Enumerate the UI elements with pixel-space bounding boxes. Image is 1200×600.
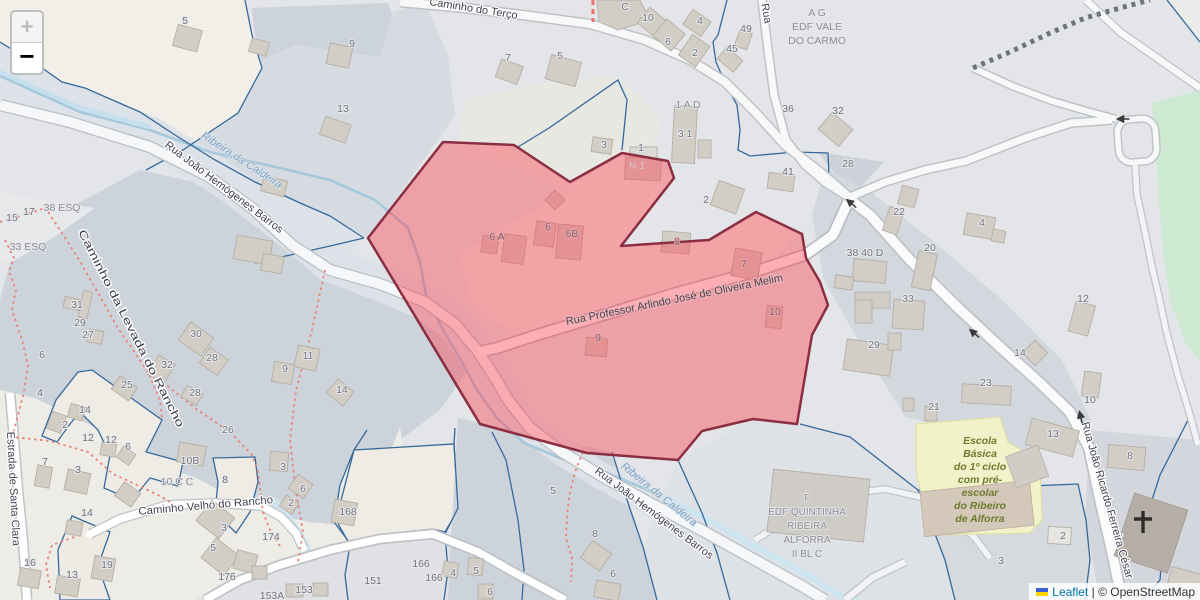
svg-text:EDF VALE: EDF VALE [792, 21, 842, 33]
svg-text:3: 3 [221, 522, 227, 534]
svg-text:28: 28 [189, 387, 201, 399]
svg-text:do Ribeiro: do Ribeiro [954, 500, 1007, 512]
svg-text:5: 5 [473, 565, 479, 577]
svg-text:10B: 10B [181, 455, 200, 467]
svg-text:6: 6 [610, 568, 616, 580]
svg-text:6B: 6B [566, 228, 579, 240]
svg-text:49: 49 [740, 23, 752, 35]
svg-text:4: 4 [37, 387, 43, 399]
svg-text:32: 32 [832, 105, 844, 117]
svg-text:14: 14 [1014, 347, 1026, 359]
svg-text:8: 8 [222, 474, 228, 486]
svg-text:31: 31 [71, 299, 83, 311]
svg-text:4: 4 [979, 217, 985, 229]
svg-text:10 C C: 10 C C [161, 476, 194, 488]
svg-text:28: 28 [842, 158, 854, 170]
svg-text:13: 13 [1047, 428, 1059, 440]
svg-text:3: 3 [280, 461, 286, 473]
svg-text:4: 4 [450, 567, 456, 579]
svg-text:22: 22 [893, 206, 905, 218]
svg-text:10: 10 [1084, 394, 1096, 406]
svg-text:8: 8 [674, 236, 680, 248]
svg-text:1 A D: 1 A D [675, 99, 701, 111]
svg-text:45: 45 [726, 43, 738, 55]
svg-text:166: 166 [412, 558, 430, 570]
svg-text:escolar: escolar [962, 487, 1000, 499]
svg-text:6: 6 [125, 441, 131, 453]
svg-text:9: 9 [349, 38, 355, 50]
svg-text:33 ESQ: 33 ESQ [10, 241, 47, 253]
svg-text:5: 5 [182, 15, 188, 27]
svg-text:A G: A G [808, 7, 826, 19]
svg-text:12: 12 [105, 434, 117, 446]
svg-text:DO CARMO: DO CARMO [788, 35, 846, 47]
svg-text:8: 8 [1127, 450, 1133, 462]
svg-text:4: 4 [697, 15, 703, 27]
svg-text:N 1: N 1 [629, 160, 646, 172]
svg-text:6: 6 [39, 349, 45, 361]
svg-text:ALFORRA: ALFORRA [783, 535, 831, 546]
svg-text:33: 33 [902, 293, 914, 305]
svg-text:41: 41 [782, 166, 794, 178]
svg-text:14: 14 [81, 507, 93, 519]
svg-text:14: 14 [79, 404, 91, 416]
svg-text:7: 7 [505, 52, 511, 64]
svg-text:26: 26 [222, 424, 234, 436]
svg-text:F: F [804, 493, 810, 504]
svg-text:3: 3 [998, 555, 1004, 567]
svg-text:30: 30 [190, 328, 202, 340]
svg-text:1: 1 [638, 142, 644, 154]
svg-text:13: 13 [337, 103, 349, 115]
svg-text:3 1: 3 1 [678, 128, 693, 140]
svg-text:6: 6 [487, 586, 493, 598]
svg-text:176: 176 [218, 571, 236, 583]
svg-text:3: 3 [601, 139, 607, 151]
svg-text:174: 174 [262, 531, 280, 543]
svg-text:13: 13 [66, 569, 78, 581]
svg-text:C: C [621, 1, 629, 13]
svg-text:16: 16 [24, 557, 36, 569]
svg-text:28: 28 [206, 352, 218, 364]
svg-text:7: 7 [741, 258, 747, 270]
svg-text:9: 9 [282, 363, 288, 375]
svg-text:19: 19 [101, 559, 113, 571]
svg-text:11: 11 [303, 350, 314, 362]
svg-text:38 40 D: 38 40 D [847, 247, 884, 259]
svg-text:2: 2 [288, 497, 294, 509]
svg-text:29: 29 [868, 339, 880, 351]
svg-text:EDF QUINTINHA: EDF QUINTINHA [768, 507, 846, 518]
svg-text:do 1º ciclo: do 1º ciclo [954, 461, 1007, 473]
svg-text:168: 168 [339, 506, 357, 518]
svg-text:6: 6 [300, 483, 306, 495]
svg-text:5: 5 [557, 50, 563, 62]
svg-text:2: 2 [1060, 530, 1066, 542]
svg-text:17: 17 [23, 206, 35, 218]
svg-text:5: 5 [210, 542, 216, 554]
svg-text:23: 23 [980, 377, 992, 389]
svg-text:10: 10 [642, 12, 654, 24]
svg-text:14: 14 [336, 384, 348, 396]
svg-text:36: 36 [782, 103, 794, 115]
svg-text:2: 2 [692, 47, 698, 59]
svg-text:de Alforra: de Alforra [955, 513, 1004, 525]
svg-text:25: 25 [121, 379, 133, 391]
svg-text:3: 3 [75, 464, 81, 476]
svg-text:7: 7 [42, 456, 48, 468]
svg-text:8: 8 [592, 528, 598, 540]
svg-text:RIBEIRA: RIBEIRA [787, 521, 827, 532]
svg-text:32: 32 [161, 359, 173, 371]
svg-text:27: 27 [82, 329, 94, 341]
svg-text:9: 9 [595, 332, 601, 344]
svg-text:II BL C: II BL C [792, 549, 822, 560]
svg-text:12: 12 [82, 432, 94, 444]
svg-text:166: 166 [425, 572, 443, 584]
svg-text:20: 20 [924, 242, 936, 254]
svg-text:Escola: Escola [963, 435, 997, 447]
svg-text:Básica: Básica [963, 448, 997, 460]
svg-text:12: 12 [1077, 293, 1089, 305]
svg-text:6 A: 6 A [489, 231, 504, 243]
svg-text:6: 6 [545, 221, 551, 233]
svg-text:29: 29 [74, 317, 86, 329]
svg-text:153A: 153A [260, 590, 285, 600]
svg-text:2: 2 [62, 419, 68, 431]
svg-text:10: 10 [769, 306, 781, 318]
svg-text:151: 151 [364, 575, 382, 587]
svg-text:5: 5 [550, 485, 556, 497]
svg-text:21: 21 [928, 401, 940, 413]
svg-text:2: 2 [703, 194, 709, 206]
svg-text:153: 153 [295, 584, 313, 596]
svg-text:15: 15 [6, 212, 18, 224]
svg-text:6: 6 [665, 36, 671, 48]
svg-text:38 ESQ: 38 ESQ [44, 202, 81, 214]
svg-text:com pré-: com pré- [958, 474, 1003, 486]
